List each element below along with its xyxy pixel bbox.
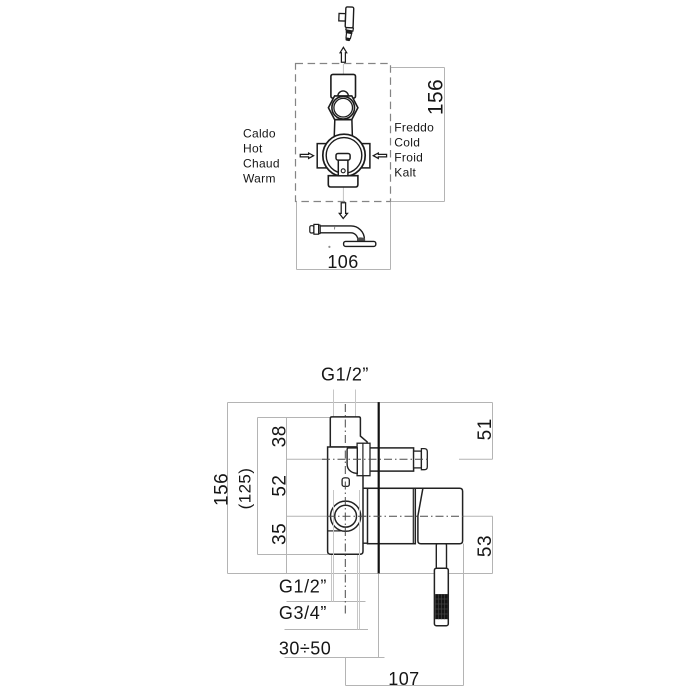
svg-text:G1/2”: G1/2”: [279, 577, 327, 597]
svg-text:106: 106: [327, 252, 358, 272]
svg-text:Cold: Cold: [394, 136, 420, 150]
svg-text:Froid: Froid: [394, 151, 423, 165]
svg-text:G3/4”: G3/4”: [279, 603, 327, 623]
svg-text:51: 51: [475, 418, 496, 440]
svg-text:53: 53: [475, 535, 496, 557]
svg-text:Kalt: Kalt: [394, 166, 416, 180]
svg-text:(125): (125): [236, 468, 255, 510]
svg-text:38: 38: [269, 425, 290, 447]
svg-text:Hot: Hot: [243, 142, 263, 156]
svg-text:Warm: Warm: [243, 172, 276, 186]
svg-text:Freddo: Freddo: [394, 121, 434, 135]
svg-text:Caldo: Caldo: [243, 127, 276, 141]
svg-text:156: 156: [212, 473, 233, 506]
svg-text:G1/2”: G1/2”: [321, 365, 369, 385]
svg-text:35: 35: [269, 523, 290, 545]
svg-text:30÷50: 30÷50: [279, 638, 331, 658]
svg-text:52: 52: [269, 475, 290, 497]
svg-text:156: 156: [425, 79, 448, 115]
svg-text:Chaud: Chaud: [243, 157, 280, 171]
svg-text:107: 107: [388, 669, 419, 689]
